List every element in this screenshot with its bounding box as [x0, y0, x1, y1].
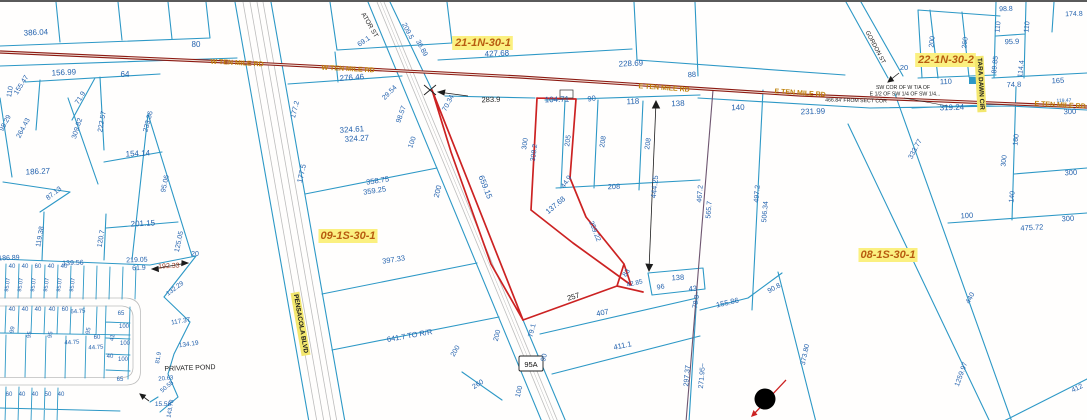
dimension-label: 50 — [45, 392, 52, 398]
dimension-label: 407 — [595, 307, 609, 318]
survey-markers — [140, 73, 948, 401]
dimension-label: 138 — [671, 99, 685, 108]
dimension-label: 300 — [1000, 155, 1008, 167]
road-name-label: E TEN MILE RD — [638, 83, 690, 94]
dimension-label: 333.77 — [908, 138, 924, 160]
dimension-label: 100 — [118, 357, 129, 363]
black-dot-marker — [755, 389, 776, 410]
dimension-label: 60 — [35, 264, 42, 270]
section-label: 09-1S-30-1 — [320, 230, 375, 242]
dimension-label: 412 — [1071, 383, 1085, 394]
dimension-label: 160 — [1012, 134, 1020, 146]
dimension-label: 324.27 — [344, 133, 370, 144]
dimension-label: 506.34 — [761, 201, 770, 223]
dimension-label: 137.68 — [544, 194, 567, 216]
dimension-label: 219.05 — [126, 257, 148, 265]
dimension-label: 40 — [9, 307, 16, 313]
parcel-map-viewport[interactable]: 95A 386.0480156.9964110155.4771.9222.579… — [0, 0, 1087, 420]
dimension-label: 95 — [47, 330, 54, 338]
dimension-label: 100 — [515, 385, 525, 398]
section-label: 21-1N-30-1 — [454, 37, 511, 49]
dimension-label: 80 — [192, 40, 201, 49]
dimension-label: 155.47 — [13, 74, 30, 96]
road-name-label: E TEN MILE RD — [1034, 101, 1086, 111]
dimension-label: 95 — [85, 326, 92, 334]
dimension-label: 100 — [119, 324, 130, 330]
dimension-label: 177.2 — [290, 100, 301, 119]
arrowhead — [653, 101, 660, 108]
dimension-label: 40 — [107, 354, 114, 360]
dimension-label: 208 — [599, 135, 608, 148]
dimension-label: 411.1 — [613, 339, 633, 352]
dimension-label: 300 — [1064, 168, 1077, 178]
dimension-label: 79.1 — [528, 323, 538, 338]
dimension-label: 95.07 — [17, 278, 25, 292]
dimension-label: 71.9 — [74, 90, 87, 105]
dimension-label: 99 — [9, 325, 16, 333]
highway-95a-shield: 95A — [519, 356, 543, 371]
dimension-label: 125.05 — [174, 230, 185, 253]
dimension-label: 110 — [994, 21, 1002, 33]
dimension-label: 466.84' FROM SECT COR — [825, 97, 887, 104]
dimension-label: 95.07 — [56, 278, 64, 292]
dimension-label: 65 — [117, 377, 124, 383]
dimension-label: 40 — [19, 392, 26, 398]
road-name-label: W TEN MILE RD — [321, 65, 375, 75]
section-label: 08-1S-30-1 — [860, 249, 915, 261]
dimension-label: 297.37 — [683, 365, 692, 387]
dimension-label: 100 — [960, 211, 973, 221]
dimension-label: 98.29 — [0, 114, 13, 133]
dimension-label: 29.54 — [381, 84, 398, 101]
dimension-label: 78.3 — [692, 294, 701, 309]
dimension-label: 276.46 — [339, 72, 365, 83]
dimension-label: 208 — [608, 182, 621, 191]
dimension-label: 228.69 — [618, 58, 643, 68]
dimension-label: 200 — [493, 329, 503, 342]
dimension-label: 20 — [191, 251, 199, 258]
dimension-label: 165 — [1052, 76, 1065, 85]
dimension-label: 209.5 — [400, 22, 414, 41]
dimension-label: 200 — [432, 184, 444, 198]
dimension-label: 89.85 — [991, 56, 1000, 74]
dimension-label: 95.07 — [4, 278, 12, 292]
dimension-label: 641.7 TO R/R — [386, 327, 433, 344]
dimension-label: GORDON ST — [864, 30, 887, 65]
dimension-label: 44.75 — [64, 340, 80, 347]
dimension-label: 174.8 — [1065, 11, 1083, 19]
dimension-label: 36.89 — [414, 39, 428, 58]
dimension-label: 200 — [928, 36, 936, 48]
dimension-label: 95.07 — [43, 278, 51, 292]
dimension-label: 319.24 — [940, 103, 965, 113]
section-label: 22-1N-30-2 — [917, 54, 974, 66]
dimension-label: 95.9 — [1004, 37, 1019, 47]
highway-95a-label: 95A — [524, 360, 537, 369]
highlighted-parcel-outline[interactable] — [432, 90, 643, 320]
dimension-label: 156.99 — [51, 67, 76, 77]
dimension-label: 300 — [1061, 214, 1074, 224]
dimension-label: 200 — [450, 344, 462, 358]
dimension-label: 140 — [1008, 191, 1016, 203]
dimension-label: 397.33 — [382, 253, 406, 265]
dimension-label: 60 — [94, 335, 101, 341]
dimension-label: 119.38 — [35, 226, 46, 248]
dimension-label: 64.75 — [70, 309, 86, 316]
arrowhead — [888, 77, 894, 82]
dimension-label: 565.7 — [705, 201, 714, 219]
dimension-label: 90 — [587, 93, 597, 103]
dimension-label: 95.07 — [30, 278, 38, 292]
parcel-map[interactable]: 95A 386.0480156.9964110155.4771.9222.579… — [0, 2, 1087, 420]
dimension-label: 497.2 — [753, 185, 762, 203]
dimension-label: 300 — [521, 137, 530, 150]
dimension-label: 205 — [564, 134, 573, 147]
dimension-label: 70.34 — [441, 94, 455, 113]
dimension-label: 98.8 — [999, 6, 1013, 13]
dimension-label: 95.07 — [69, 278, 77, 292]
dimension-label: 134.19 — [178, 340, 199, 350]
dimension-label: 95 — [26, 330, 33, 338]
dimension-label: 40 — [22, 307, 29, 313]
dimension-label: 222.57 — [97, 110, 108, 132]
dimension-label: 87.13 — [45, 186, 63, 202]
dimension-label: 74.8 — [1006, 80, 1021, 90]
point-marker — [751, 380, 786, 417]
dimension-label: 83 — [622, 268, 632, 278]
dimension-label: 88 — [687, 70, 696, 79]
dimension-label: 186.89 — [0, 255, 20, 263]
dimension-label: 201.15 — [130, 218, 155, 228]
dimension-label: 373.80 — [800, 343, 811, 366]
dimension-label: 177.5 — [295, 163, 308, 183]
arrowhead — [438, 90, 445, 95]
dimension-label: 98.57 — [395, 105, 408, 124]
dimension-label: 154.14 — [125, 148, 150, 158]
arrowhead — [182, 261, 188, 266]
dimension-label: 43 — [688, 284, 697, 294]
dimension-label: 90.8 — [767, 282, 782, 295]
dimension-label: 40 — [35, 307, 42, 313]
dimension-label: 271.95~ — [698, 363, 707, 389]
dimension-label: 69.1 — [357, 35, 372, 49]
dimension-label: 60 — [6, 392, 13, 398]
dimension-label: 61.9 — [132, 265, 146, 272]
dimension-label: 40 — [9, 264, 16, 270]
dimension-label: 40 — [32, 392, 39, 398]
dimension-label: 264.43 — [16, 117, 32, 139]
dimension-label: 140 — [731, 103, 745, 112]
road-name-label: W TEN MILE RD — [210, 59, 264, 69]
map-labels-layer: 386.0480156.9964110155.4771.9222.5798.29… — [0, 6, 1086, 419]
dimension-label: 40 — [48, 264, 55, 270]
dimension-label: ATOR ST — [359, 12, 379, 39]
dimension-label: 259.22 — [587, 220, 602, 243]
dimension-label: 60 — [62, 307, 69, 313]
road-name-label: E TEN MILE RD — [774, 88, 826, 99]
dimension-label: 659.15 — [477, 174, 495, 201]
dimension-label: 155.86 — [715, 296, 739, 310]
dimension-label: 100 — [120, 341, 131, 347]
dimension-label: 81.9 — [155, 351, 163, 364]
dimension-label: 40 — [61, 264, 68, 270]
dimension-label: 40 — [58, 392, 65, 398]
dimension-label: 231.99 — [801, 107, 826, 117]
dimension-label: 138 — [671, 273, 684, 283]
dimension-label: 444.25 — [649, 175, 660, 199]
dimension-label: E 1/2 OF SW 1/4 OF SW 1/4... — [870, 92, 941, 98]
dimension-label: 20 — [900, 63, 908, 72]
dimension-label: 386.04 — [23, 27, 48, 37]
dimension-label: 110 — [1023, 21, 1031, 33]
dimension-label: 100 — [407, 136, 418, 149]
dimension-label: 475.72 — [1020, 222, 1043, 232]
arrowhead — [646, 264, 653, 271]
dimension-label: 260 — [961, 37, 969, 49]
dimension-label: 208 — [644, 137, 653, 150]
dimension-label: 192.33 — [158, 262, 180, 270]
dimension-label: 64 — [121, 70, 130, 79]
dimension-label: 309.82 — [71, 117, 84, 140]
dimension-label: 96 — [656, 283, 665, 291]
dimension-label: 44.75 — [88, 345, 104, 352]
dimension-label: 283.9 — [481, 95, 500, 105]
dimension-label: 308.2 — [530, 144, 539, 162]
dimension-label: SW COR OF W T/A OF — [876, 85, 930, 91]
dimension-label: PRIVATE POND — [164, 364, 215, 373]
dimension-label: 118 — [626, 97, 640, 106]
dimension-label: 110 — [940, 77, 952, 86]
dimension-label: 90 — [540, 353, 549, 362]
dimension-label: 40 — [49, 307, 56, 313]
dimension-label: 186.27 — [25, 166, 50, 176]
dimension-label: 104.71 — [545, 95, 570, 105]
dimension-label: 40 — [22, 264, 29, 270]
dimension-label: 65 — [118, 311, 125, 317]
